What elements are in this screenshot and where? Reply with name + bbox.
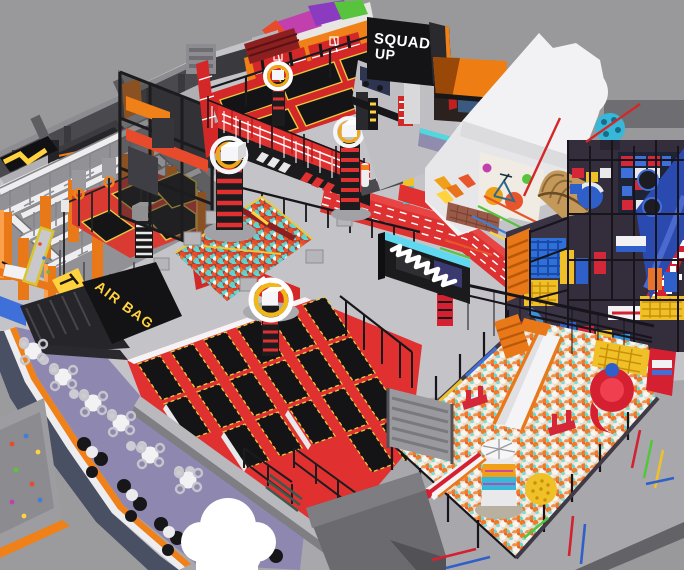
svg-text:UP: UP — [374, 45, 396, 63]
